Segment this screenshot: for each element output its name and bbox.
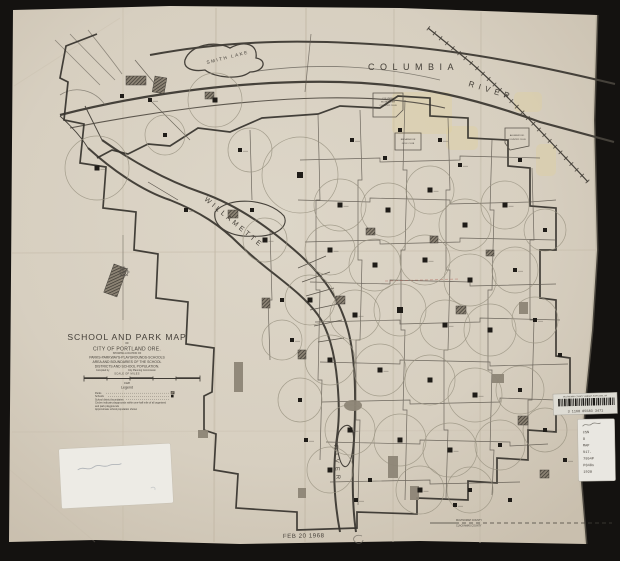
barcode-bar (587, 398, 589, 406)
school-symbol (473, 393, 478, 398)
park-area (519, 302, 528, 314)
school-symbol (463, 223, 468, 228)
school-symbol (468, 488, 472, 492)
club3-label: COUNTRY CLUB (508, 139, 526, 141)
park-area (456, 306, 466, 314)
school-symbol (513, 268, 517, 272)
school-symbol (448, 448, 453, 453)
club3-label: ALDERWOOD (510, 134, 525, 137)
park-area (518, 416, 528, 425)
school-symbol (518, 388, 522, 392)
legend-heading: Legend (121, 386, 133, 390)
school-symbol (543, 428, 547, 432)
school-symbol (328, 248, 333, 253)
call-number-line: 1928 (583, 471, 592, 475)
school-symbol (498, 443, 502, 447)
call-number-line: 917. (583, 451, 592, 455)
call-number-line: 7954P (583, 457, 594, 461)
park-area (336, 296, 345, 304)
school-symbol (163, 133, 167, 137)
school-symbol (398, 128, 402, 132)
school-symbol (348, 428, 353, 433)
barcode-bar (603, 398, 605, 406)
school-symbol (428, 378, 433, 383)
legend-school-symbol (171, 395, 174, 398)
school-symbol (373, 263, 378, 268)
date-stamp: FEB 20 1968 (283, 533, 325, 540)
barcode-bar (593, 398, 596, 406)
park-area (430, 236, 438, 243)
barcode-sticker: MULTNOMAH COUNTY LIBRARY, PORTLAND, OR 3… (553, 392, 618, 415)
barcode-bar (575, 398, 577, 406)
school-symbol (95, 166, 100, 171)
school-symbol (297, 172, 303, 178)
school-symbol (558, 353, 562, 357)
school-symbol (328, 358, 333, 363)
school-symbol (120, 94, 124, 98)
title-line3: DISTRICTS AND SCHOOL POPULATION. (95, 364, 159, 368)
title-line1: PARKS-PARKWAYS-PLAYGROUNDS-SCHOOLS (89, 356, 165, 360)
barcode-bar (564, 399, 566, 407)
school-symbol (453, 503, 457, 507)
park-area (344, 400, 362, 411)
school-symbol (184, 208, 188, 212)
park-area (126, 76, 146, 85)
school-symbol (353, 313, 358, 318)
school-symbol (543, 228, 547, 232)
school-symbol (468, 278, 473, 283)
park-area (234, 362, 243, 392)
school-symbol (304, 438, 308, 442)
school-symbol (533, 318, 537, 322)
barcode-bar (609, 398, 611, 406)
park-area (388, 456, 398, 478)
school-symbol (250, 208, 254, 212)
call-number-label: CSNOMAP917.7954PP848s1928 (577, 419, 615, 482)
park-area (366, 228, 375, 235)
columbia-label: COLUMBIA (368, 62, 459, 72)
school-symbol (508, 498, 512, 502)
club2-label: GOLF CLUB (402, 143, 415, 145)
map-title: SCHOOL AND PARK MAP (67, 332, 186, 342)
club2-label: BROADMOOR (401, 138, 416, 141)
compiled-by: Compiled by (96, 369, 110, 372)
stain-patch (536, 144, 556, 176)
school-symbol (308, 298, 313, 303)
park-area (486, 250, 494, 256)
school-symbol (213, 98, 218, 103)
school-symbol (423, 258, 428, 263)
county-label-bottom: CLACKAMAS COUNTY (456, 525, 482, 528)
title-line2: AREA AND BOUNDARIES OF THE SCHOOL (93, 360, 162, 364)
legend-park-symbol (171, 391, 174, 394)
call-number-line: O (583, 438, 585, 442)
barcode-bar (582, 398, 584, 406)
call-number-line: P848s (583, 464, 594, 468)
school-symbol (428, 188, 433, 193)
park-area (262, 298, 270, 308)
school-symbol (397, 307, 403, 313)
school-symbol (503, 203, 508, 208)
portland-school-park-map: MULTNOMAH COUNTY CLACKAMAS COUNTY COLUMB… (0, 0, 620, 561)
school-symbol (148, 98, 152, 102)
school-symbol (563, 458, 567, 462)
school-symbol (328, 468, 333, 473)
title-of: OF (125, 341, 129, 345)
club1-label: COLUMBIA (382, 97, 394, 100)
county-label-top: MULTNOMAH COUNTY (456, 519, 482, 522)
school-symbol (438, 138, 442, 142)
blank-label (59, 443, 174, 509)
scale-caption: SCALE OF MILES (114, 372, 140, 376)
school-symbol (443, 323, 448, 328)
call-number-line: MAP (583, 444, 590, 448)
club1-label: EDGEWATER (381, 101, 395, 104)
school-symbol (368, 478, 372, 482)
park-area (198, 430, 208, 438)
school-symbol (290, 338, 294, 342)
school-symbol (350, 138, 354, 142)
school-symbol (354, 498, 358, 502)
school-symbol (398, 438, 403, 443)
map-photo: MULTNOMAH COUNTY CLACKAMAS COUNTY COLUMB… (0, 0, 620, 561)
barcode-bar (558, 399, 560, 407)
park-area (492, 374, 504, 383)
school-symbol (238, 148, 242, 152)
legend-entry: Approximate school population shown (95, 408, 138, 411)
park-area (540, 470, 549, 478)
club1-label: COUNTRY CLUB (379, 105, 397, 107)
school-symbol (383, 156, 387, 160)
legend-year: 1928 (124, 381, 130, 385)
barcode-bar (598, 398, 600, 406)
park-area (298, 488, 306, 498)
barcode-bar (568, 399, 571, 407)
school-symbol (518, 158, 522, 162)
school-symbol (280, 298, 284, 302)
school-symbol (386, 208, 391, 213)
school-symbol (378, 368, 383, 373)
park-area (152, 76, 167, 94)
call-number-line: CSN (583, 431, 590, 435)
school-symbol (418, 488, 423, 493)
school-symbol (488, 328, 493, 333)
park-area (298, 350, 306, 359)
school-symbol (338, 203, 343, 208)
school-symbol (298, 398, 302, 402)
school-symbol (263, 238, 268, 243)
school-symbol (458, 163, 462, 167)
